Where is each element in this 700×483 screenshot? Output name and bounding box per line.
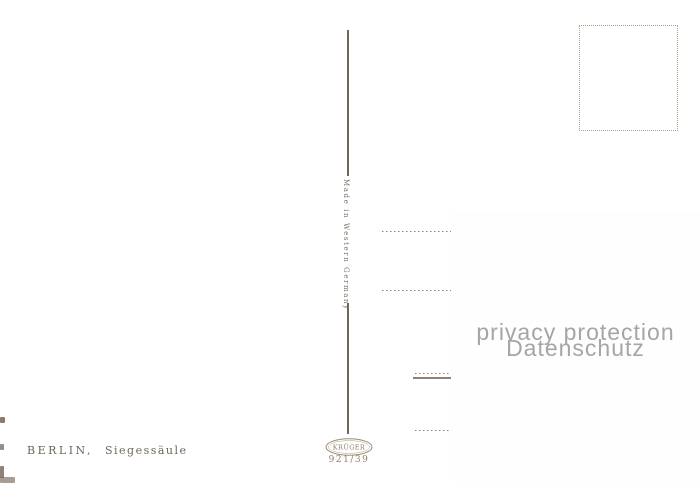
divider-line-bottom	[347, 303, 349, 434]
scanned-postcard-back: Made in Western Germany KRÜGER 921/39 BE…	[0, 0, 700, 483]
stamp-box	[579, 25, 678, 131]
address-line-1	[382, 231, 455, 233]
publisher-logo-text: KRÜGER	[333, 443, 366, 452]
card-number: 921/39	[318, 455, 380, 465]
scan-edge-mark	[0, 477, 15, 483]
scan-edge-mark	[0, 417, 5, 423]
privacy-overlay-text: privacy protection Datenschutz	[451, 324, 700, 356]
caption: BERLIN,Siegessäule	[27, 444, 188, 457]
caption-subject: Siegessäule	[105, 444, 188, 457]
divider-line-top	[347, 30, 349, 176]
address-line-3	[415, 373, 455, 375]
address-line-2	[382, 290, 455, 292]
spine-text: Made in Western Germany	[342, 179, 350, 305]
address-line-4	[415, 430, 455, 432]
privacy-overlay: privacy protection Datenschutz	[451, 212, 700, 483]
address-line-3-underline	[413, 377, 455, 379]
caption-city: BERLIN,	[27, 444, 93, 457]
publisher-logo-icon: KRÜGER	[324, 437, 374, 457]
scan-edge-mark	[0, 444, 4, 450]
